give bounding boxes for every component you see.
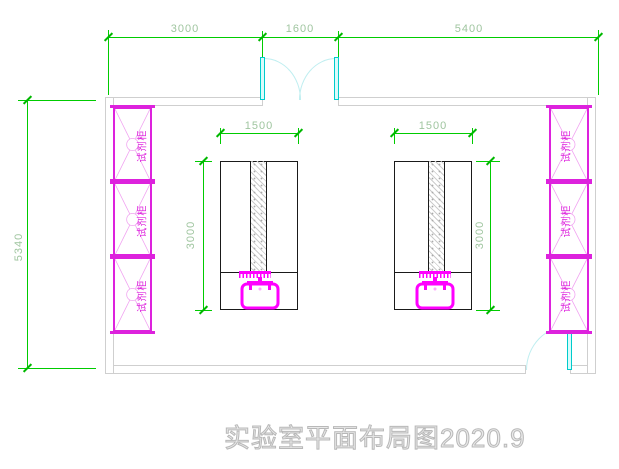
cabinet-divider-bar [546, 179, 592, 184]
dimension-extension [18, 368, 96, 369]
dimension-extension [598, 30, 599, 95]
cabinet-divider-bar [110, 179, 155, 184]
dimension-text-bench-depth: 3000 [185, 221, 197, 249]
cabinet-label: 试剂柜 [558, 205, 573, 238]
reagent-cabinet: 试剂柜 [549, 107, 589, 182]
cabinet-end-bar [546, 105, 592, 108]
dimension-text-left: 5340 [13, 233, 25, 261]
dimension-line-top [108, 37, 598, 38]
dimension-line-bench-width [394, 133, 472, 134]
cabinet-end-bar [110, 331, 155, 334]
double-door-leaf-right [334, 57, 339, 100]
cabinet-label: 试剂柜 [558, 130, 573, 163]
dimension-text-bench-width: 1500 [419, 120, 447, 132]
dimension-line-left [27, 100, 28, 368]
cabinet-divider-bar [110, 254, 155, 259]
dimension-line-bench-depth [203, 161, 204, 310]
cabinet-label: 试剂柜 [558, 280, 573, 313]
dimension-text-top-door: 1600 [286, 23, 314, 35]
sink-icon [413, 277, 457, 310]
dimension-extension [108, 30, 109, 95]
dimension-text-top-left: 3000 [171, 23, 199, 35]
cabinet-end-bar [546, 331, 592, 334]
floor-plan-canvas: 3000 1600 5400 5340 试剂柜 试剂柜 [0, 0, 619, 469]
reagent-cabinet: 试剂柜 [113, 182, 152, 257]
door-swing-arc [299, 58, 336, 100]
reagent-cabinet: 试剂柜 [549, 257, 589, 332]
bench-service-duct [250, 161, 267, 273]
cabinet-label: 试剂柜 [134, 130, 149, 163]
reagent-cabinet: 试剂柜 [549, 182, 589, 257]
double-door-leaf-left [260, 57, 265, 100]
cabinet-end-bar [110, 105, 155, 108]
cabinet-label: 试剂柜 [134, 205, 149, 238]
wall-bottom-left [105, 365, 526, 374]
sink-icon [238, 277, 282, 310]
reagent-cabinet: 试剂柜 [113, 257, 152, 332]
reagent-cabinet: 试剂柜 [113, 107, 152, 182]
dimension-text-bench-depth: 3000 [474, 221, 486, 249]
door-swing-arc [264, 58, 301, 100]
dimension-extension [18, 100, 96, 101]
dimension-line-bench-width [220, 133, 298, 134]
drawing-title: 实验室平面布局图2020.9 [224, 418, 526, 455]
dimension-text-bench-width: 1500 [245, 120, 273, 132]
dimension-text-top-right: 5400 [455, 23, 483, 35]
dimension-line-bench-depth [490, 161, 491, 310]
cabinet-divider-bar [546, 254, 592, 259]
bench-service-duct [428, 161, 445, 273]
cabinet-label: 试剂柜 [134, 280, 149, 313]
